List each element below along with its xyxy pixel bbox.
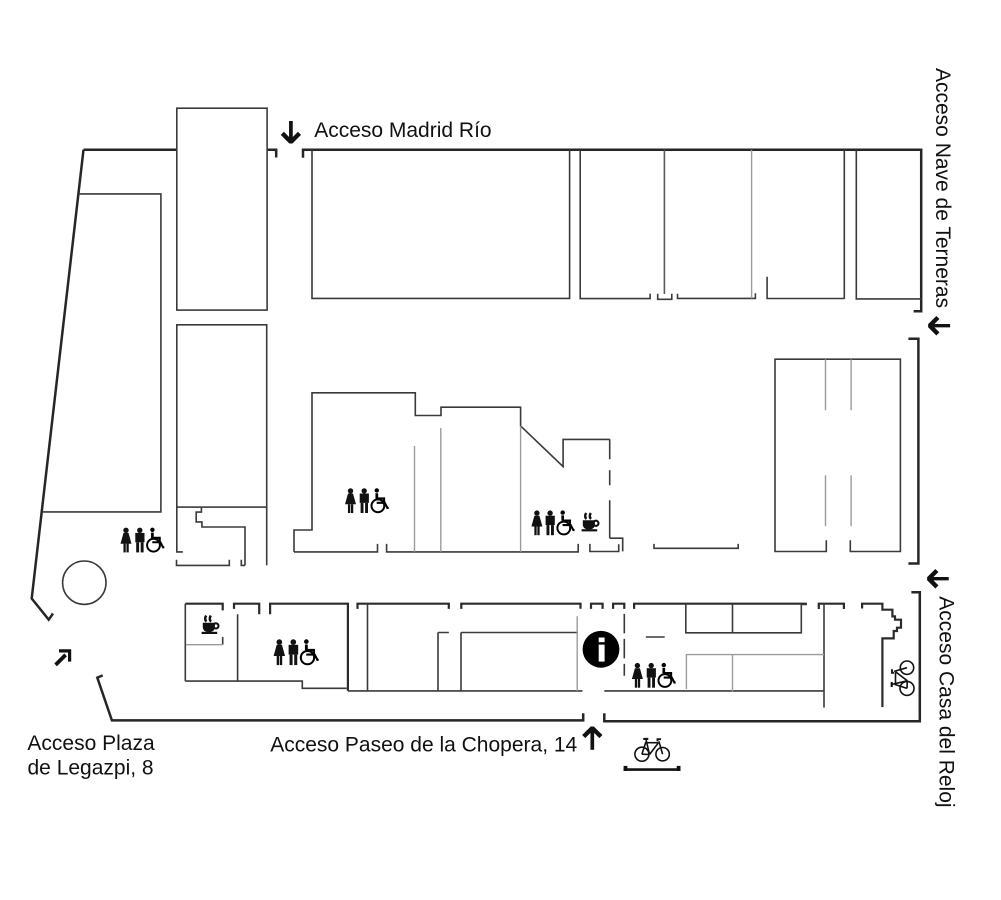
svg-text:Acceso Nave de Terneras: Acceso Nave de Terneras <box>931 68 954 308</box>
svg-text:Acceso Plaza: Acceso Plaza <box>27 732 155 755</box>
svg-text:de Legazpi, 8: de Legazpi, 8 <box>28 757 154 780</box>
svg-text:Acceso Paseo de la Chopera, 14: Acceso Paseo de la Chopera, 14 <box>270 734 577 757</box>
svg-text:Acceso Madrid Río: Acceso Madrid Río <box>314 119 491 142</box>
svg-text:Acceso Casa del Reloj: Acceso Casa del Reloj <box>935 596 958 807</box>
